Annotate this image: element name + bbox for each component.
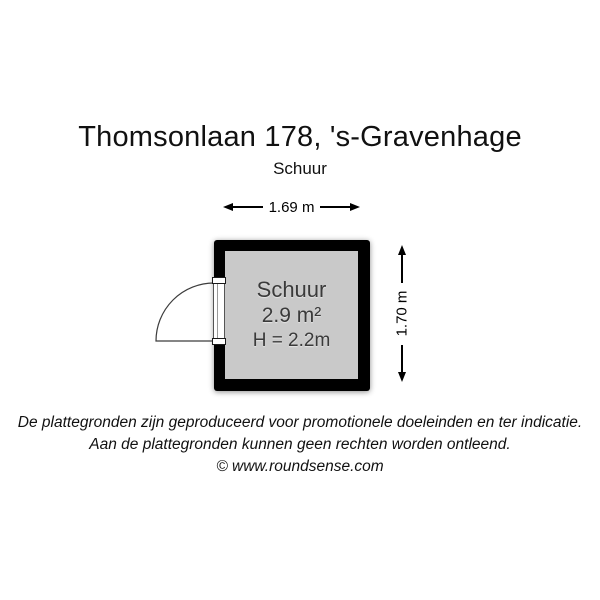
arrow-up-icon [398,245,406,255]
door-jamb-bottom [212,338,226,345]
disclaimer-line-1: De plattegronden zijn geproduceerd voor … [0,412,600,434]
dimension-line [233,206,263,208]
arrow-right-icon [350,203,360,211]
floorplan-page: Thomsonlaan 178, 's-Gravenhage Schuur 1.… [0,0,600,600]
copyright-line: © www.roundsense.com [0,456,600,478]
arrow-left-icon [223,203,233,211]
height-dimension: 1.70 m [394,245,410,382]
door-frame [213,284,225,338]
dimension-line [401,345,403,373]
room-ceiling-height-label: H = 2.2m [253,329,331,353]
disclaimer-line-2: Aan de plattegronden kunnen geen rechten… [0,434,600,456]
disclaimer: De plattegronden zijn geproduceerd voor … [0,412,600,478]
width-dimension-label: 1.69 m [269,199,315,216]
room-area-label: 2.9 m² [262,303,322,329]
room-name-label: Schuur [257,277,327,303]
arrow-down-icon [398,372,406,382]
door-jamb-top [212,277,226,284]
dimension-line [320,206,350,208]
room-labels: Schuur 2.9 m² H = 2.2m [225,251,358,379]
dimension-line [401,255,403,283]
door-track-line [217,284,218,338]
page-subtitle: Schuur [0,159,600,179]
width-dimension: 1.69 m [223,199,360,215]
page-title: Thomsonlaan 178, 's-Gravenhage [0,121,600,154]
height-dimension-label: 1.70 m [394,291,411,337]
